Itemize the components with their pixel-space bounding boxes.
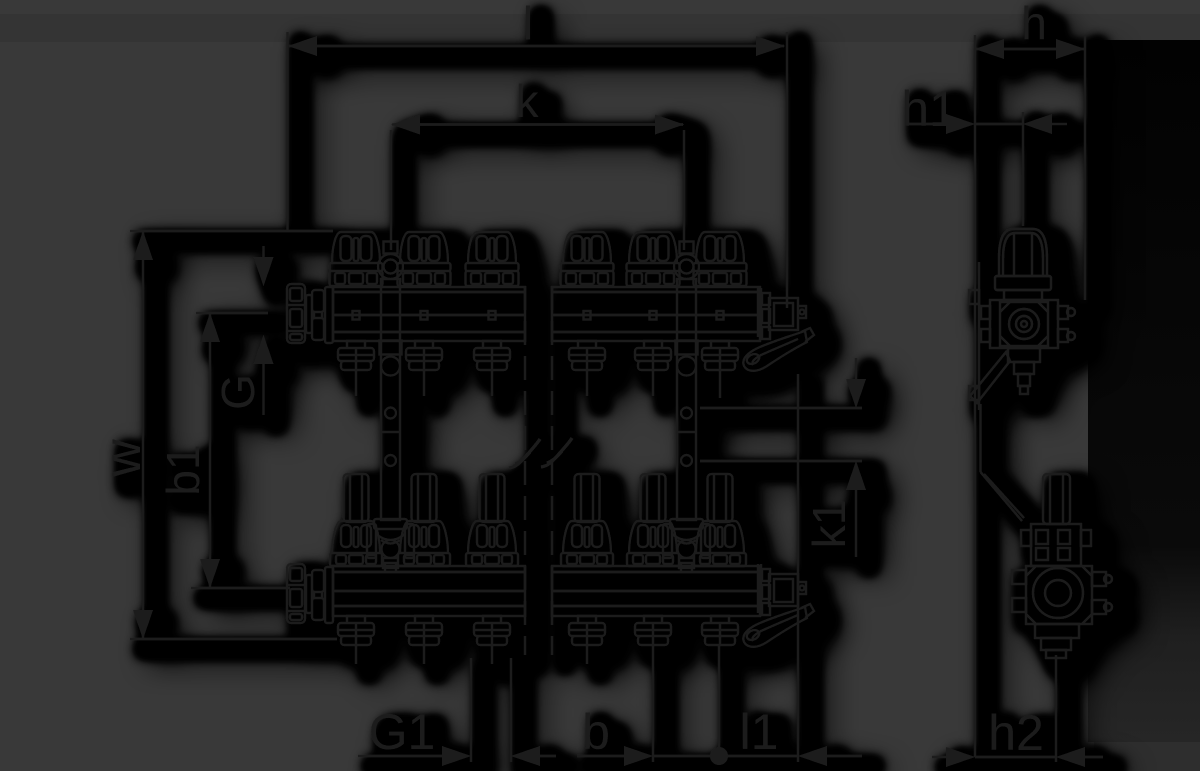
svg-text:h1: h1 xyxy=(901,81,957,137)
svg-text:b1: b1 xyxy=(157,444,209,495)
svg-text:G1: G1 xyxy=(369,704,436,760)
svg-text:k1: k1 xyxy=(803,500,855,549)
svg-text:k: k xyxy=(516,75,540,127)
svg-text:l1: l1 xyxy=(740,704,779,760)
svg-text:w: w xyxy=(94,439,152,478)
svg-text:h: h xyxy=(1021,0,1047,49)
svg-text:G: G xyxy=(212,374,264,410)
svg-text:b: b xyxy=(582,704,610,760)
svg-text:h2: h2 xyxy=(988,705,1044,761)
svg-text:l: l xyxy=(523,0,533,49)
